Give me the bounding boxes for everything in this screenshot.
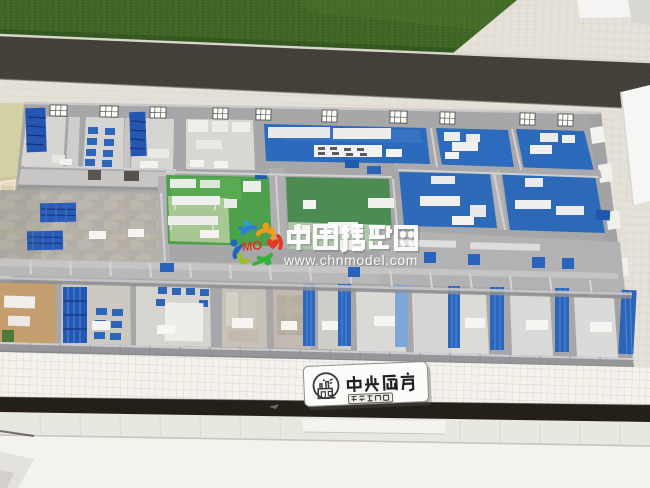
svg-text:www.chnmodel.com: www.chnmodel.com bbox=[283, 252, 418, 268]
svg-text:MO: MO bbox=[241, 238, 262, 253]
